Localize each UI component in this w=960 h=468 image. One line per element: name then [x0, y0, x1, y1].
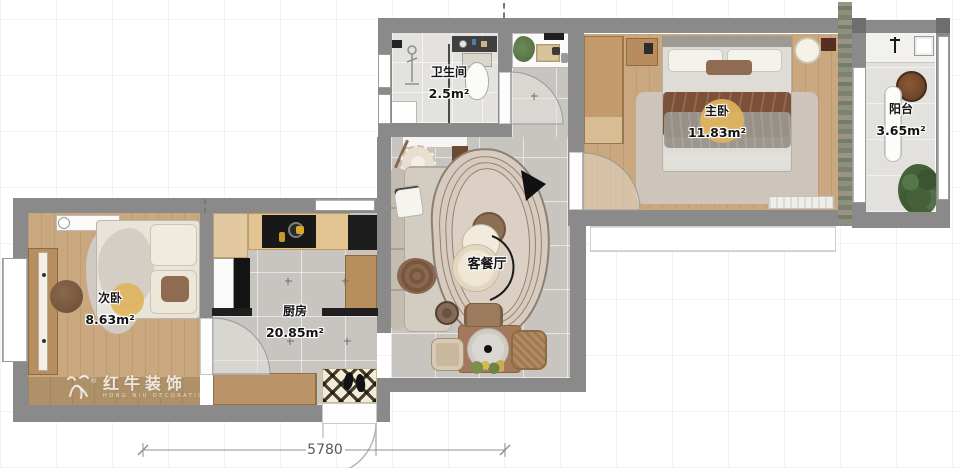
floor-plan: 卫生间 2.5m² 主卧 11.83m² 阳台 3.65m² 次卧 8.63m²… — [0, 0, 960, 468]
dining-flowers — [470, 360, 504, 375]
leftwing-bottom-wall — [13, 405, 322, 422]
room-label-master: 主卧 11.83m² — [688, 105, 746, 140]
second-wardrobe-door — [38, 252, 48, 371]
entry-wall-segment — [544, 33, 564, 40]
second-beanbag — [50, 280, 83, 313]
kitchen-bottom-wall-right — [322, 308, 378, 316]
watermark-sub-text: HONG NIU DECORATION — [103, 394, 211, 399]
living-right-wall — [570, 216, 586, 392]
balcony-name: 阳台 — [876, 103, 925, 117]
kitchen-window — [315, 199, 375, 211]
vanity-item-tan — [481, 41, 487, 47]
kitchen-upper-cabinet — [213, 213, 248, 258]
balcony-left-stub-bottom — [852, 203, 866, 228]
dimension-value: 5780 — [307, 442, 343, 458]
hall-shoe-cabinet — [213, 373, 317, 405]
master-nightstand-right — [821, 38, 836, 51]
bathroom-doorway — [499, 72, 511, 124]
master-radiator — [768, 196, 834, 209]
watermark-brand-text: 红牛装饰 — [103, 376, 211, 392]
pouf-bottom — [435, 301, 459, 325]
bathroom-window-2 — [378, 94, 391, 124]
living-left-wall — [377, 137, 391, 333]
kitchen-tall-black-unit — [234, 258, 250, 310]
kitchen-wood-cabinet — [345, 255, 378, 310]
balcony-corner-tr — [936, 18, 950, 33]
second-pillow-1 — [150, 224, 197, 266]
vanity-sink-icon — [459, 40, 467, 48]
entrance-corner-wall — [377, 392, 390, 422]
cooktop-item-yellow-2 — [279, 232, 285, 242]
sofa-pillow-white — [393, 184, 424, 218]
kitchen-name: 厨房 — [266, 305, 324, 319]
exterior-ledge — [590, 226, 836, 252]
second-area: 8.63m² — [85, 313, 134, 327]
bathroom-window-1 — [378, 54, 391, 88]
bull-logo-icon — [64, 374, 90, 400]
second-name: 次卧 — [85, 292, 134, 306]
kitchen-area: 20.85m² — [266, 326, 324, 340]
dining-chair-top — [464, 303, 503, 327]
balcony-corner-tl — [852, 18, 866, 33]
master-bottom-wall — [568, 210, 858, 226]
balcony-right-window — [937, 36, 949, 200]
kitchen-bottom-wall-left — [212, 308, 252, 316]
second-doorway — [200, 318, 213, 375]
second-accent-pillow — [161, 276, 189, 302]
dining-chair-right — [511, 330, 547, 370]
nightstand-decor-item — [644, 43, 653, 54]
balcony-frame-box — [914, 36, 934, 56]
top-wall — [378, 18, 858, 33]
wardrobe-handle-1 — [42, 273, 46, 277]
bathroom-shelf-items — [391, 40, 402, 48]
master-lamp — [794, 37, 821, 64]
room-label-second: 次卧 8.63m² — [85, 292, 134, 327]
second-kitchen-wall — [200, 213, 213, 318]
master-area: 11.83m² — [688, 126, 746, 140]
master-doorway — [569, 152, 583, 210]
entry-item-gray — [561, 53, 568, 63]
vanity-item-blue — [472, 39, 476, 45]
balcony-left-stub-top — [852, 33, 866, 67]
bathroom-bottom-wall — [378, 123, 512, 137]
second-desk-lamp — [58, 217, 70, 229]
dining-chair-left — [431, 338, 464, 371]
balcony-bottom-wall — [852, 212, 950, 228]
master-bed-foot — [664, 153, 790, 169]
bathroom-name: 卫生间 — [429, 66, 470, 80]
living-name: 客餐厅 — [467, 258, 506, 273]
room-label-bathroom: 卫生间 2.5m² — [429, 66, 470, 101]
second-bedroom-window — [2, 258, 28, 362]
cooktop-item-yellow-1 — [296, 226, 304, 234]
kitchen-black-cabinet — [348, 215, 378, 250]
master-headboard — [662, 36, 792, 47]
wall-dash-marker-top — [503, 3, 505, 18]
master-accent-pillow — [706, 60, 752, 75]
entrance-doorway — [322, 403, 377, 424]
room-label-kitchen: 厨房 20.85m² — [266, 305, 324, 340]
balcony-plant — [898, 164, 940, 216]
bathroom-area: 2.5m² — [429, 87, 470, 101]
master-wardrobe — [584, 36, 624, 144]
dining-platter-center — [484, 345, 492, 353]
master-name: 主卧 — [688, 105, 746, 119]
balcony-area: 3.65m² — [876, 124, 925, 138]
garden-strip — [838, 2, 852, 224]
registered-mark: ® — [90, 377, 97, 385]
balcony-sliding-door — [852, 67, 866, 203]
room-label-balcony: 阳台 3.65m² — [876, 103, 925, 138]
fridge — [213, 258, 234, 310]
wall-dash-marker-left — [204, 199, 206, 213]
entry-item-dark — [552, 47, 560, 55]
living-bottom-wall — [377, 378, 586, 392]
wardrobe-handle-2 — [42, 339, 46, 343]
master-nightstand-left — [626, 38, 658, 66]
room-label-living: 客餐厅 — [467, 258, 506, 273]
brand-watermark: ® 红牛装饰 HONG NIU DECORATION — [64, 374, 211, 400]
